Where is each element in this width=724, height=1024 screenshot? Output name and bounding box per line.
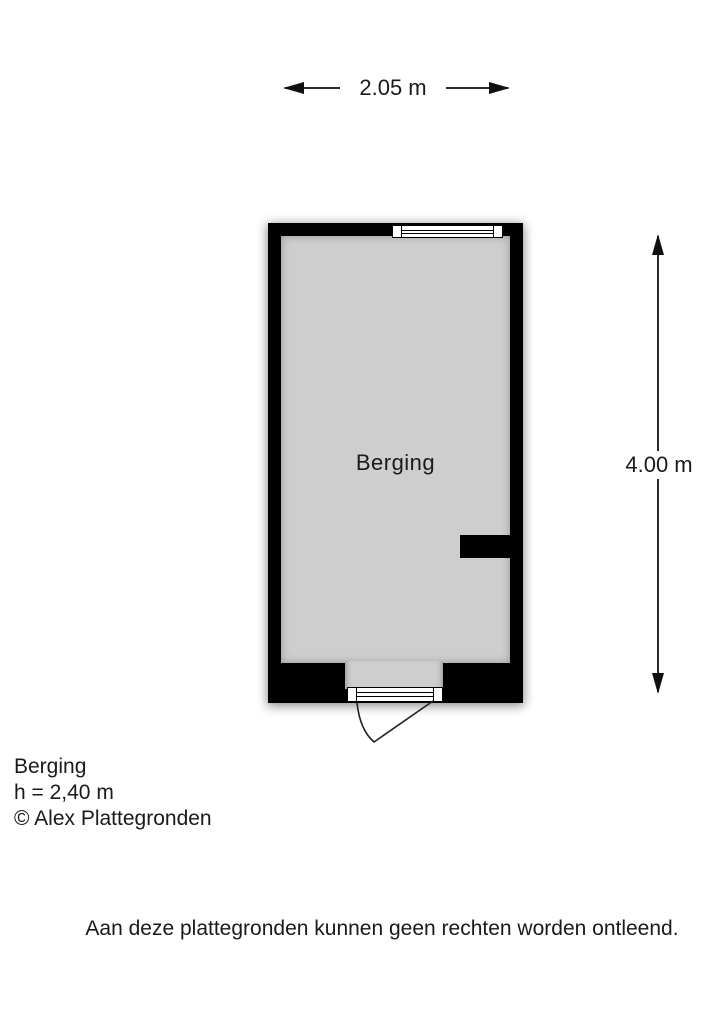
width-dimension-label: 2.05 m [340,74,446,102]
door-post-right [433,687,443,702]
door-frame-symbol [347,687,443,702]
interior-wall-stub [460,535,510,558]
floorplan-room-outline: Berging [268,223,523,703]
legend-block: Berging h = 2,40 m © Alex Plattegronden [14,754,212,832]
disclaimer-text: Aan deze plattegronden kunnen geen recht… [40,917,724,941]
floorplan-page: Berging 2.05 m 4.00 m Berging h = 2,40 m… [0,0,724,1024]
height-dimension-label: 4.00 m [616,451,702,479]
window-symbol [392,225,503,238]
window-glass [402,225,493,238]
door-post-left [347,687,357,702]
legend-ceiling-height: h = 2,40 m [14,780,212,806]
room-floor-door-recess [345,661,443,689]
arrowhead-up-icon [652,234,664,255]
room-label: Berging [268,450,523,476]
legend-room-name: Berging [14,754,212,780]
window-post-left [392,225,402,238]
legend-copyright: © Alex Plattegronden [14,806,212,832]
door-threshold [357,687,433,702]
arrowhead-down-icon [652,673,664,694]
arrowhead-left-icon [283,82,304,94]
window-post-right [493,225,503,238]
arrowhead-right-icon [489,82,510,94]
door-swing-arc [357,701,433,742]
